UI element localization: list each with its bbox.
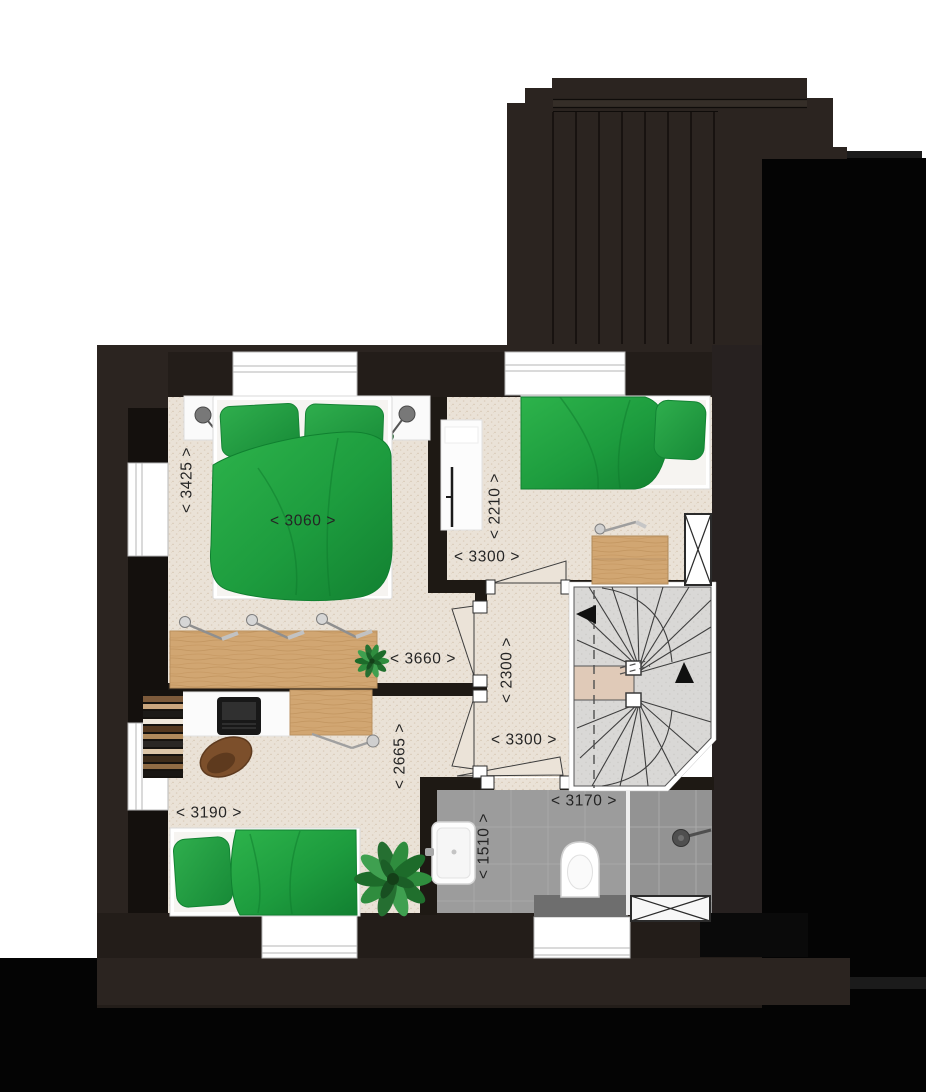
floorplan-drawing	[0, 0, 926, 1092]
crosshatch-vent	[631, 896, 710, 921]
backdrop-step-bottom	[848, 977, 926, 989]
pillow	[173, 836, 234, 908]
dim-bedroom1-width: < 3660 >	[390, 651, 456, 667]
single-bed-2	[521, 396, 710, 489]
sink	[425, 822, 475, 884]
roof-ridge-band	[553, 100, 807, 107]
duvet	[231, 830, 357, 915]
bathroom-window-sill	[534, 895, 628, 917]
desk-return-wood	[290, 690, 372, 735]
single-bed-3	[170, 828, 360, 916]
spiral-staircase	[569, 582, 716, 791]
dim-bathroom-depth: < 1510 >	[476, 813, 492, 879]
dim-bathroom-width: < 3170 >	[551, 793, 617, 809]
dim-bedroom1-bed-width: < 3060 >	[270, 513, 336, 529]
window-left-1	[128, 463, 168, 556]
window-bottom-2	[534, 917, 630, 958]
shower-glass-partition	[626, 790, 630, 915]
wardrobe-crosshatch	[685, 514, 711, 585]
dim-bedroom1-depth: < 3425 >	[179, 447, 195, 513]
dim-bedroom3-width: < 3190 >	[176, 805, 242, 821]
dim-hall-depth: < 2300 >	[499, 637, 515, 703]
desk-lamp	[595, 524, 605, 534]
stair-landing	[574, 666, 634, 700]
wall-top	[97, 345, 762, 397]
toilet	[561, 842, 599, 897]
dim-hall-width: < 3300 >	[491, 732, 557, 748]
double-bed	[210, 396, 392, 601]
window-top-1	[233, 352, 357, 397]
dim-bedroom3-depth: < 2665 >	[392, 723, 408, 789]
wall-right	[712, 345, 762, 1008]
desk-bedroom2	[441, 420, 482, 530]
wall-bottom-outer	[97, 958, 850, 1005]
window-top-2	[505, 352, 625, 395]
laptop	[217, 697, 261, 735]
duvet	[521, 397, 668, 489]
window-bottom-1	[262, 915, 357, 958]
floorplan-canvas: < 3425 > < 3060 > < 3660 > < 2210 > < 33…	[0, 0, 926, 1092]
dim-bedroom2-depth: < 2210 >	[487, 473, 503, 539]
wall-corner-recess	[700, 913, 808, 957]
dim-bedroom2-width: < 3300 >	[454, 549, 520, 565]
wall-bedroom2-south-left	[428, 580, 495, 593]
pillow	[654, 400, 707, 461]
bookshelf	[143, 690, 183, 778]
